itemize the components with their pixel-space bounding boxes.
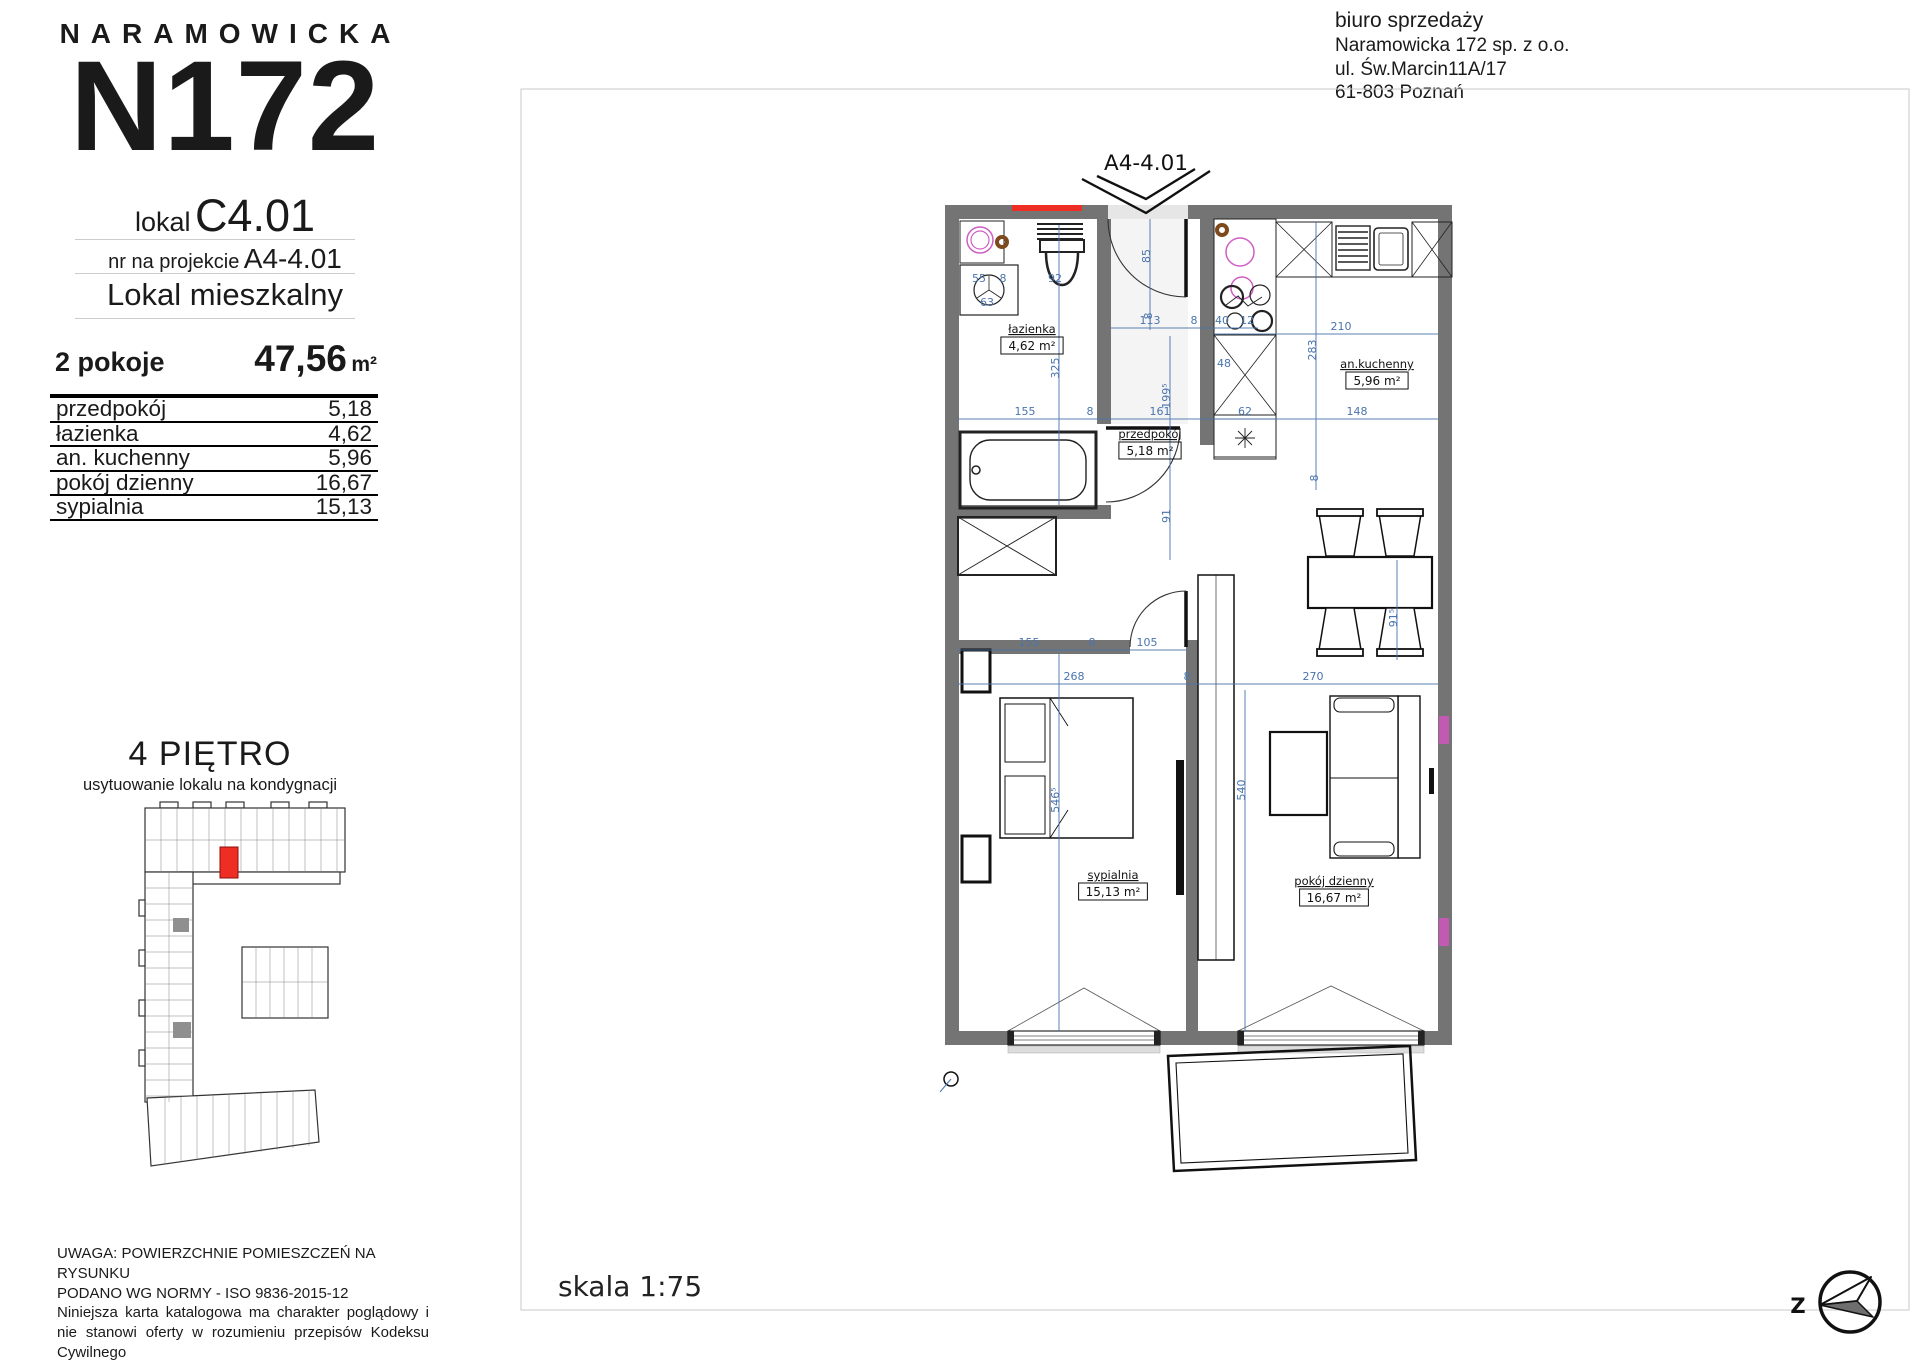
- dimension-label: 91⁵: [1387, 609, 1400, 627]
- project-label: nr na projekcie: [108, 251, 239, 273]
- wall-north: [1188, 205, 1452, 219]
- sofa-armrest: [1334, 842, 1394, 856]
- dimension-label: 210: [1331, 320, 1352, 333]
- room-label-name: przedpokój: [1118, 427, 1181, 441]
- project-number: A4-4.01: [244, 243, 342, 274]
- room-label-area: 5,96 m²: [1353, 374, 1400, 388]
- total-area: 47,56: [254, 338, 347, 379]
- disclaimer-line: UWAGA: POWIERZCHNIE POMIESZCZEŃ NA RYSUN…: [57, 1244, 429, 1284]
- lokal-label: lokal: [135, 207, 191, 237]
- room-area: 16,67: [316, 472, 372, 495]
- sofa-armrest: [1334, 698, 1394, 712]
- room-area: 15,13: [316, 496, 372, 519]
- dimension-label: 325: [1049, 358, 1062, 379]
- dimension-label: 105: [1137, 636, 1158, 649]
- room-area: 4,62: [328, 423, 372, 446]
- nightstand: [962, 836, 990, 882]
- dimension-label: 62: [1238, 405, 1252, 418]
- dimension-label: 113: [1140, 314, 1161, 327]
- disclaimer-line: PODANO WG NORMY - ISO 9836-2015-12: [57, 1284, 429, 1304]
- wardrobe-x: [958, 517, 1056, 575]
- brand-logo: N172: [0, 46, 450, 168]
- lokal-line: lokal C4.01: [0, 190, 450, 242]
- room-label: an.kuchenny5,96 m²: [1340, 357, 1414, 389]
- chair: [1379, 514, 1421, 556]
- bedroom-window: [1008, 1031, 1160, 1045]
- dimension-label: 540: [1235, 780, 1248, 801]
- sofa: [1330, 696, 1398, 858]
- dimension-label: 91: [1160, 509, 1173, 523]
- building-center-block: [242, 947, 328, 1018]
- rooms-table: przedpokój 5,18 łazienka 4,62 an. kuchen…: [50, 394, 378, 521]
- chair: [1319, 608, 1361, 650]
- dimension-label: 8: [1191, 314, 1198, 327]
- rooms-count: 2 pokoje: [55, 347, 165, 378]
- dimension-label: 8: [1087, 405, 1094, 418]
- room-area: 5,18: [328, 398, 372, 421]
- disclaimer: UWAGA: POWIERZCHNIE POMIESZCZEŃ NA RYSUN…: [57, 1244, 429, 1363]
- floor-location: 4 PIĘTRO usytuowanie lokalu na kondygnac…: [40, 735, 380, 795]
- dimension-label: 85: [1140, 249, 1153, 263]
- wall-bedroom-living-partition: [1186, 640, 1198, 1031]
- drain-icon: [1217, 225, 1227, 235]
- dimension-label: 268: [1064, 670, 1085, 683]
- dimension-label: 92: [1048, 272, 1062, 285]
- address-line: Naramowicka 172 sp. z o.o.: [1335, 34, 1735, 58]
- room-label-area: 4,62 m²: [1008, 339, 1055, 353]
- kitchen-counter-west: [1214, 219, 1276, 459]
- dimension-label: 48: [1217, 357, 1231, 370]
- sofa-back: [1398, 696, 1420, 858]
- building-core: [173, 1022, 191, 1038]
- address-line: ul. Św.Marcin11A/17: [1335, 58, 1735, 82]
- total-area-unit: m²: [351, 353, 377, 376]
- coffee-table: [1270, 732, 1327, 815]
- room-area: 5,96: [328, 447, 372, 470]
- dimension-label: 63: [980, 296, 994, 309]
- table-row: sypialnia 15,13: [50, 496, 378, 521]
- tv-unit: [1176, 760, 1184, 895]
- wall-west: [945, 205, 959, 1045]
- radiator: [1439, 918, 1449, 946]
- room-label-area: 5,18 m²: [1126, 444, 1173, 458]
- project-line: nr na projekcie A4-4.01: [0, 243, 450, 275]
- divider: [75, 318, 355, 319]
- dimension-label: 155: [1015, 405, 1036, 418]
- red-wall-marker: [1012, 205, 1082, 211]
- living-room-window: [1238, 1031, 1424, 1045]
- room-label-area: 15,13 m²: [1086, 885, 1141, 899]
- room-label-name: sypialnia: [1087, 868, 1138, 882]
- kitchen-sink-icon: [1226, 238, 1254, 266]
- dimension-label: 8: [1308, 475, 1321, 482]
- dimension-label: 12: [1240, 314, 1254, 327]
- building-core: [173, 918, 189, 932]
- dimension-label: 8: [1184, 670, 1191, 683]
- unit-summary: 2 pokoje 47,56 m²: [55, 338, 377, 380]
- bathtub-inner: [970, 440, 1086, 500]
- wall-bathroom-east: [1097, 219, 1111, 424]
- room-label-area: 16,67 m²: [1307, 891, 1362, 905]
- table-row: przedpokój 5,18: [50, 398, 378, 423]
- compass-west-label: Z: [1790, 1294, 1805, 1318]
- wall-tv: [1429, 768, 1434, 794]
- towel-radiator-icon: [1037, 224, 1083, 239]
- divider: [75, 239, 355, 240]
- kitchen-fixtures: [1214, 219, 1452, 459]
- floor-title: 4 PIĘTRO: [40, 735, 380, 774]
- scale-label: skala 1:75: [558, 1270, 702, 1303]
- compass-needle-icon: [1820, 1301, 1873, 1317]
- dimension-label: 270: [1303, 670, 1324, 683]
- pillow: [1005, 704, 1045, 762]
- wall-kitchen-west: [1200, 219, 1214, 445]
- nightstand: [962, 650, 990, 692]
- dining-set: [1308, 509, 1432, 656]
- dimension-label: 283: [1306, 340, 1319, 361]
- stove-burner-icon: [1250, 285, 1270, 305]
- room-label-name: pokój dzienny: [1294, 874, 1374, 888]
- dimension-label: 8: [1000, 272, 1007, 285]
- table-row: pokój dzienny 16,67: [50, 472, 378, 497]
- pillow: [1005, 776, 1045, 834]
- dimension-label: 40: [1215, 314, 1229, 327]
- room-label: łazienka4,62 m²: [1001, 322, 1063, 354]
- asterisk-icon: [1235, 428, 1255, 448]
- room-label: przedpokój5,18 m²: [1118, 427, 1181, 459]
- room-name: łazienka: [56, 423, 139, 446]
- unit-marker: A4-4.01: [1082, 151, 1210, 213]
- sales-office-title: biuro sprzedaży: [1335, 8, 1735, 34]
- drain-icon: [997, 237, 1007, 247]
- room-name: pokój dzienny: [56, 472, 194, 495]
- disclaimer-paragraph: Niniejsza karta katalogowa ma charakter …: [57, 1303, 429, 1362]
- table-row: łazienka 4,62: [50, 423, 378, 448]
- dimension-label: 8: [1089, 636, 1096, 649]
- dimension-label: 55: [972, 272, 986, 285]
- room-name: sypialnia: [56, 496, 144, 519]
- table-row: an. kuchenny 5,96: [50, 447, 378, 472]
- balcony: [1168, 1046, 1416, 1171]
- room-label-name: an.kuchenny: [1340, 357, 1414, 371]
- dimension-label: 546⁵: [1049, 787, 1062, 812]
- unit-marker-label: A4-4.01: [1104, 151, 1188, 176]
- chair: [1319, 514, 1361, 556]
- compass: Z: [1790, 1272, 1880, 1332]
- radiator: [1439, 716, 1449, 744]
- bedroom-furniture: [962, 650, 1133, 882]
- dining-table: [1308, 557, 1432, 608]
- floor-location-map: [85, 800, 375, 1185]
- floor-subtitle: usytuowanie lokalu na kondygnacji: [40, 776, 380, 795]
- room-label-name: łazienka: [1008, 322, 1055, 336]
- dimension-label: 155: [1019, 636, 1040, 649]
- room-name: przedpokój: [56, 398, 166, 421]
- room-label: sypialnia15,13 m²: [1079, 868, 1148, 900]
- room-label: pokój dzienny16,67 m²: [1294, 874, 1374, 906]
- highlighted-unit: [220, 847, 238, 878]
- lokal-number: C4.01: [195, 190, 315, 241]
- floor-plan: 85855863923251138401248199⁵2102831558161…: [520, 88, 1920, 1358]
- unit-type: Lokal mieszkalny: [0, 277, 450, 313]
- toilet-tank: [1040, 240, 1084, 252]
- room-name: an. kuchenny: [56, 447, 190, 470]
- faucet-icon: [972, 466, 980, 474]
- chair: [1379, 608, 1421, 650]
- dimension-label: 148: [1347, 405, 1368, 418]
- divider: [75, 273, 355, 274]
- dimension-label: 161: [1150, 405, 1171, 418]
